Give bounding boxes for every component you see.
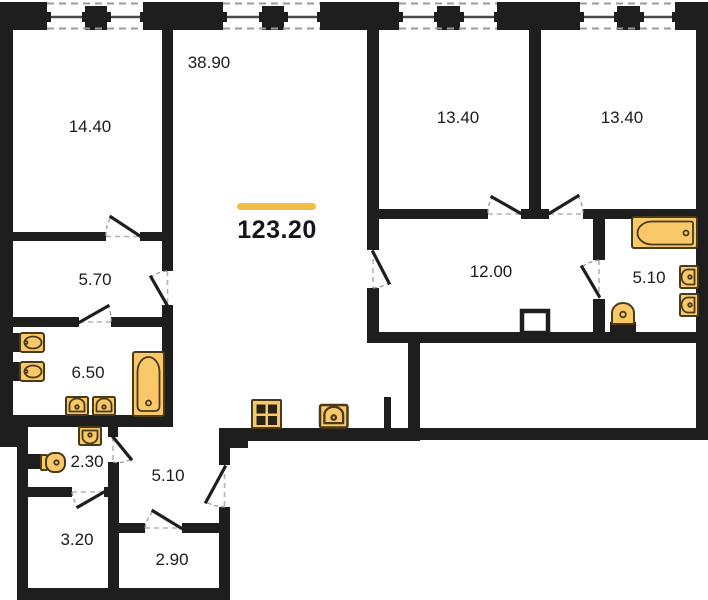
toilet-icon (610, 303, 636, 333)
room-area-label: 2.90 (155, 550, 188, 569)
wall-segment (104, 487, 118, 497)
door-storage (72, 492, 104, 507)
wall-segment (0, 2, 47, 30)
bathtub-icon (133, 352, 164, 416)
room-area-label: 3.20 (60, 530, 93, 549)
wall-segment (140, 232, 173, 241)
sink-icon (93, 397, 115, 415)
room-area-label: 12.00 (470, 262, 513, 281)
sink-icon (20, 333, 44, 352)
wall-segment (219, 428, 420, 441)
room-area-label: 5.10 (151, 466, 184, 485)
wall-segment (219, 507, 230, 588)
wall-segment (497, 2, 580, 30)
wall-segment (143, 2, 223, 30)
door-bedroom-middle (488, 197, 521, 214)
wall-segment (521, 209, 549, 219)
wall-segment (408, 428, 708, 440)
walls (0, 2, 708, 600)
door-wc (113, 437, 131, 463)
total-area: 123.20 (237, 203, 317, 244)
room-area-label: 2.30 (70, 452, 103, 471)
wall-segment (118, 523, 145, 533)
door-entrance (206, 465, 225, 507)
wall-segment (367, 209, 488, 219)
wall-segment (108, 462, 119, 600)
sink-icon (20, 362, 44, 381)
stove-icon (252, 400, 281, 428)
vent-shaft (522, 311, 548, 333)
wall-segment (367, 288, 379, 332)
wall-segment (529, 30, 541, 209)
wall-segment (13, 232, 106, 241)
room-area-label: 5.10 (632, 268, 665, 287)
door-living-corridor (373, 250, 389, 288)
wall-segment (0, 317, 79, 327)
room-area-label: 13.40 (601, 108, 644, 127)
door-bedroom-left (106, 217, 140, 237)
room-labels: 38.90 14.40 13.40 13.40 12.00 5.10 5.70 … (60, 53, 665, 569)
door-hall-living (151, 271, 168, 305)
room-area-label: 38.90 (188, 53, 231, 72)
wall-segment (17, 588, 230, 600)
wall-segment (17, 487, 72, 497)
total-area-value: 123.20 (237, 216, 316, 244)
sink-icon (680, 266, 698, 288)
wall-segment (593, 299, 605, 332)
floor-plan-drawing: 38.90 14.40 13.40 13.40 12.00 5.10 5.70 … (0, 0, 708, 600)
room-area-label: 5.70 (78, 270, 111, 289)
sink-icon (79, 427, 101, 445)
door-bedroom-right (549, 196, 583, 214)
sink-icon (66, 397, 88, 415)
toilet-icon (41, 453, 65, 472)
vent-stub (384, 397, 391, 428)
total-area-accent-bar (237, 203, 316, 210)
door-bathroom-left (79, 306, 111, 322)
room-area-label: 14.40 (69, 117, 112, 136)
floor-plan: 38.90 14.40 13.40 13.40 12.00 5.10 5.70 … (0, 0, 708, 600)
wall-segment (320, 2, 399, 30)
wall-segment (108, 415, 118, 437)
door-bathroom-right (582, 260, 599, 299)
wall-segment (0, 30, 13, 447)
wall-segment (111, 317, 172, 327)
bathtub-icon (632, 217, 697, 248)
wall-segment (408, 332, 420, 440)
room-area-label: 13.40 (437, 108, 480, 127)
wall-segment (162, 30, 173, 232)
wall-segment (675, 2, 708, 30)
wall-segment (17, 447, 28, 588)
door-wardrobe (145, 511, 182, 528)
sink-icon (680, 294, 698, 316)
fixture-stub (28, 454, 41, 469)
wall-segment (593, 219, 605, 260)
kitchen-sink-icon (320, 405, 348, 428)
room-area-label: 6.50 (71, 363, 104, 382)
